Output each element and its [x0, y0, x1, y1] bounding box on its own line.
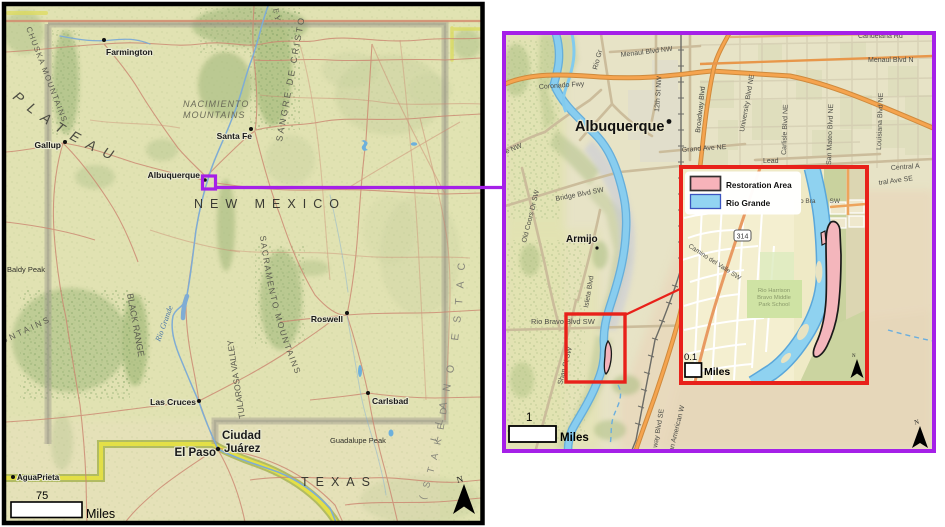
svg-text:TEXAS: TEXAS [301, 475, 377, 489]
svg-text:Albuquerque: Albuquerque [575, 119, 664, 135]
svg-text:Miles: Miles [560, 432, 589, 444]
svg-text:MOUNTAINS: MOUNTAINS [183, 110, 245, 120]
svg-text:Juárez: Juárez [224, 443, 261, 455]
svg-text:Miles: Miles [704, 366, 730, 378]
svg-text:Rio Grande: Rio Grande [726, 199, 771, 208]
svg-text:75: 75 [36, 490, 48, 502]
svg-text:314: 314 [737, 234, 749, 241]
svg-text:Menaul Blvd N: Menaul Blvd N [868, 57, 914, 64]
svg-text:Restoration Area: Restoration Area [726, 181, 792, 190]
svg-text:Gallup: Gallup [35, 140, 61, 150]
svg-text:Albuquerque: Albuquerque [148, 170, 201, 180]
svg-text:1: 1 [526, 412, 532, 424]
svg-text:Santa Fe: Santa Fe [217, 131, 253, 141]
svg-text:Guadalupe Peak: Guadalupe Peak [330, 436, 386, 445]
svg-text:AguaPrieta: AguaPrieta [17, 473, 60, 482]
svg-text:Miles: Miles [86, 507, 115, 521]
svg-text:Armijo: Armijo [566, 234, 598, 245]
svg-text:Lead: Lead [763, 158, 779, 165]
svg-text:NEW MEXICO: NEW MEXICO [194, 197, 346, 211]
svg-text:Rio Bravo Blvd SW: Rio Bravo Blvd SW [531, 317, 596, 326]
svg-text:NACIMIENTO: NACIMIENTO [183, 99, 249, 109]
svg-text:Las Cruces: Las Cruces [150, 397, 196, 407]
svg-text:El Paso: El Paso [174, 447, 216, 459]
svg-text:Rio Harrison: Rio Harrison [758, 288, 790, 294]
svg-text:Roswell: Roswell [311, 314, 343, 324]
svg-text:Bravo Middle: Bravo Middle [757, 295, 791, 301]
svg-text:Carlsbad: Carlsbad [372, 396, 408, 406]
svg-text:0.1: 0.1 [684, 352, 697, 363]
svg-text:Farmington: Farmington [106, 47, 153, 57]
svg-text:Baldy Peak: Baldy Peak [7, 265, 45, 274]
svg-text:Park School: Park School [758, 302, 789, 308]
svg-text:Ciudad: Ciudad [222, 430, 261, 442]
svg-text:N: N [852, 354, 856, 359]
